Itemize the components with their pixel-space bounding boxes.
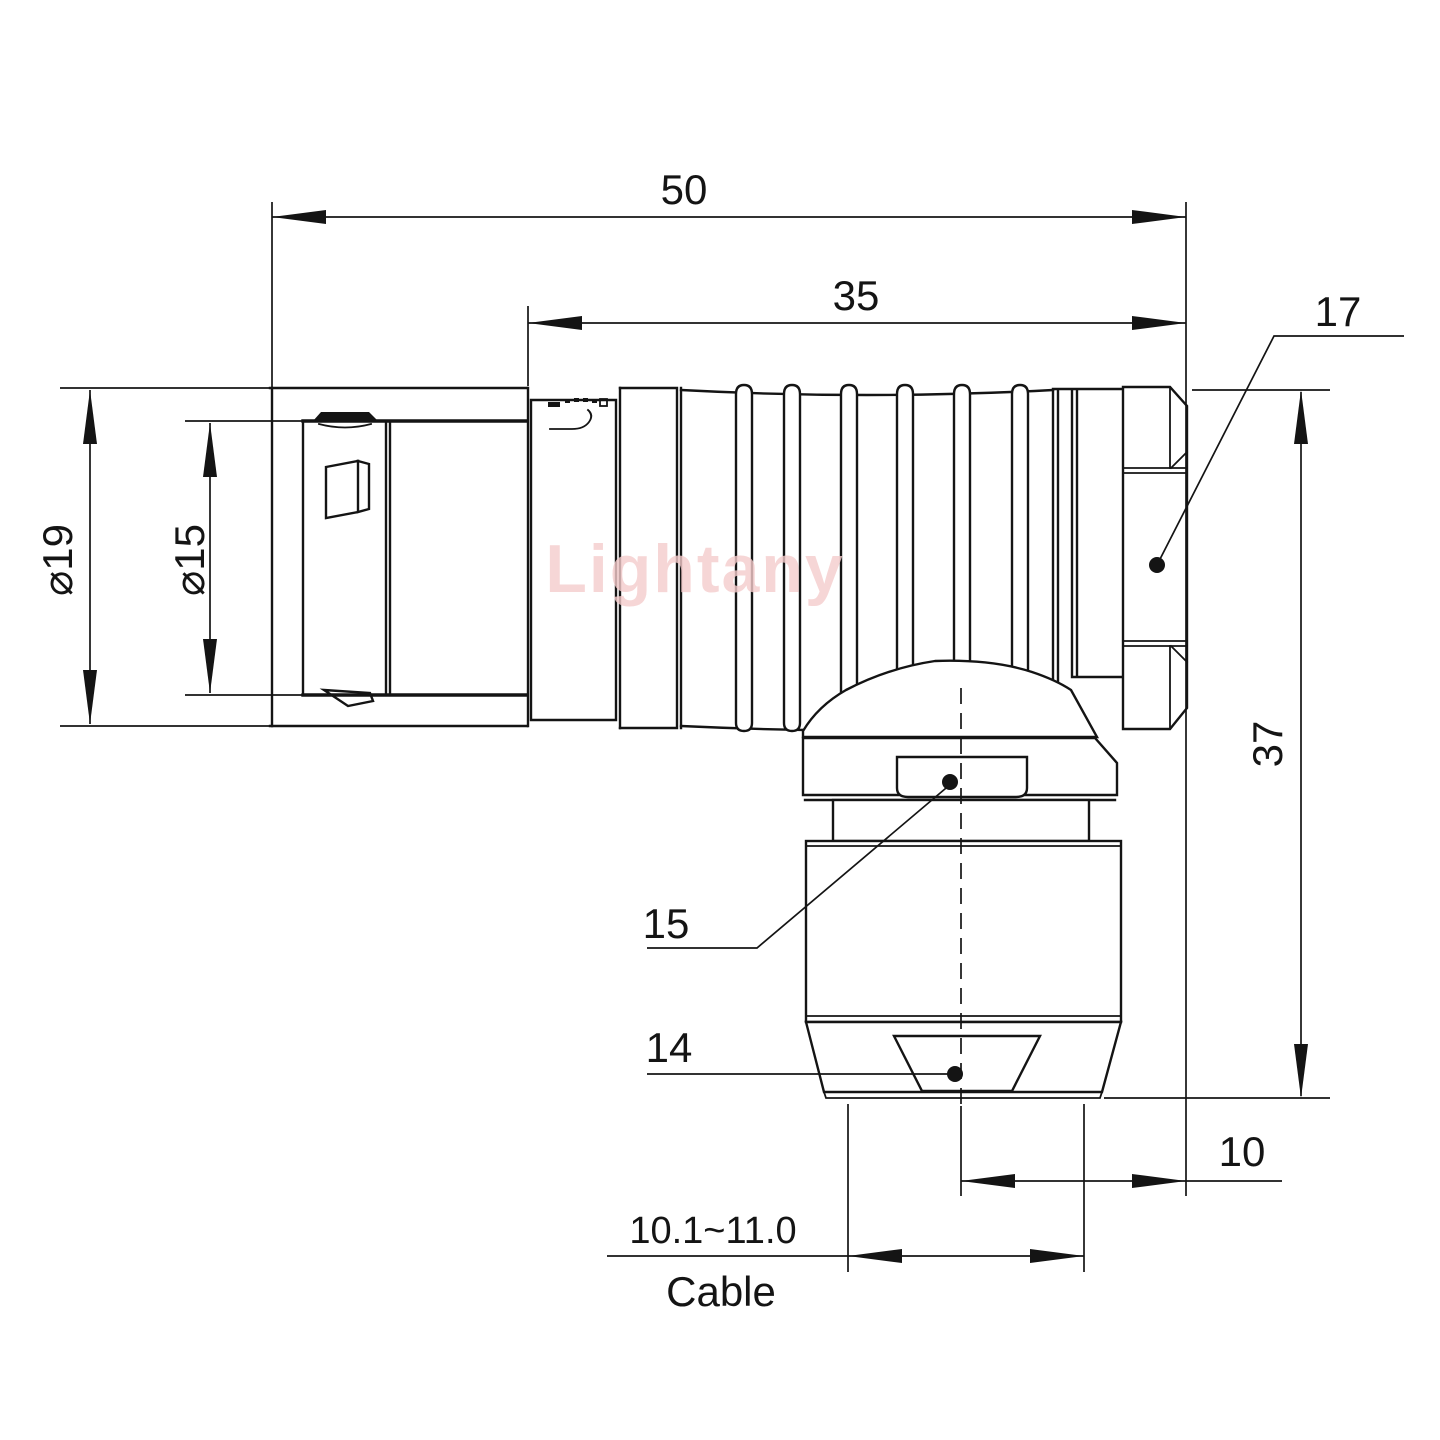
retaining-clip xyxy=(324,690,373,706)
leader-dot xyxy=(947,1066,963,1082)
arrow-right-icon xyxy=(1132,316,1186,330)
arrow-left-icon xyxy=(961,1174,1015,1188)
arrow-up-icon xyxy=(203,423,217,477)
leader-dot xyxy=(1149,557,1165,573)
grip-end-band xyxy=(1053,389,1123,700)
marking-dot xyxy=(592,399,597,403)
leader-line xyxy=(1157,336,1404,565)
dim-label-elbow-height: 37 xyxy=(1244,721,1291,768)
dim-label-sleeve-diameter: ⌀15 xyxy=(166,524,213,596)
arrow-left-icon xyxy=(528,316,582,330)
molded-marking xyxy=(548,398,607,429)
drawing-page: Lightany 50 35 ⌀19 xyxy=(0,0,1440,1440)
arrow-right-icon xyxy=(1132,210,1186,224)
dimension-axis-to-face: 10 xyxy=(961,1106,1282,1196)
connector-body xyxy=(270,385,1187,1106)
dim-label-cable-word: Cable xyxy=(666,1268,776,1315)
arrow-right-icon xyxy=(1030,1249,1084,1263)
arrow-right-icon xyxy=(1132,1174,1186,1188)
dim-label-overall-length: 50 xyxy=(661,166,708,213)
arrow-down-icon xyxy=(1294,1044,1308,1098)
dimension-front-length: 35 xyxy=(528,272,1186,386)
arrow-down-icon xyxy=(83,670,97,724)
arrow-left-icon xyxy=(848,1249,902,1263)
marking-dot xyxy=(574,398,579,402)
elbow-lower-assembly xyxy=(803,738,1121,1098)
latch-bump xyxy=(313,412,378,421)
key-window xyxy=(326,461,369,518)
marking-dot xyxy=(565,399,570,403)
connector-technical-drawing: Lightany 50 35 ⌀19 xyxy=(0,0,1440,1440)
watermark-text: Lightany xyxy=(545,531,844,607)
marking-dash xyxy=(548,402,560,407)
dim-label-collet: 14 xyxy=(646,1024,693,1071)
dim-label-outer-diameter: ⌀19 xyxy=(34,524,81,596)
dim-label-cable-range: 10.1~11.0 xyxy=(629,1210,796,1252)
dimension-outer-diameter: ⌀19 xyxy=(34,388,270,726)
clamp-barrel xyxy=(806,841,1121,1022)
dim-label-axis-to-face: 10 xyxy=(1219,1128,1266,1175)
dimension-sleeve-diameter: ⌀15 xyxy=(166,421,303,695)
arrow-left-icon xyxy=(272,210,326,224)
latch-arc xyxy=(319,424,371,428)
arrow-down-icon xyxy=(203,639,217,693)
sleeve-right-edge xyxy=(386,421,390,695)
marking-hook xyxy=(550,410,591,429)
gland-nut-face xyxy=(897,757,1027,797)
dim-label-gland-nut: 15 xyxy=(643,900,690,947)
arrow-up-icon xyxy=(83,390,97,444)
dim-label-hex-nut: 17 xyxy=(1315,288,1362,335)
marking-dot xyxy=(583,398,588,402)
dimension-annotations: 50 35 ⌀19 ⌀15 xyxy=(34,166,1404,1315)
dimension-cable-range: 10.1~11.0 Cable xyxy=(607,1104,1084,1315)
leader-dot xyxy=(942,774,958,790)
arrow-up-icon xyxy=(1294,390,1308,444)
dim-label-front-length: 35 xyxy=(833,272,880,319)
